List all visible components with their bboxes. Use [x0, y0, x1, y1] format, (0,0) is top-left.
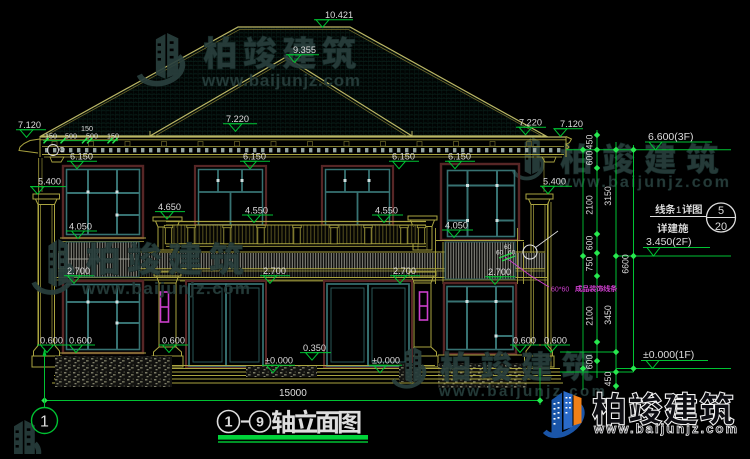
svg-text:±0.000: ±0.000 [265, 356, 293, 366]
svg-text:60: 60 [496, 250, 504, 257]
svg-text:3150: 3150 [603, 186, 613, 206]
svg-text:9: 9 [256, 414, 264, 430]
svg-text:9.355: 9.355 [293, 45, 316, 55]
svg-text:0.350: 0.350 [303, 343, 326, 353]
svg-text:5.400: 5.400 [38, 177, 61, 187]
svg-text:0.600: 0.600 [162, 336, 185, 346]
svg-text:3450: 3450 [603, 305, 613, 325]
svg-text:1: 1 [224, 415, 232, 431]
svg-text:6600: 6600 [621, 254, 631, 274]
svg-text:7.220: 7.220 [519, 118, 542, 128]
svg-text:±0.000: ±0.000 [372, 356, 400, 366]
svg-text:2.700: 2.700 [488, 267, 511, 277]
svg-text:450: 450 [585, 135, 595, 150]
svg-text:500: 500 [65, 132, 77, 141]
svg-text:6.150: 6.150 [448, 152, 471, 162]
svg-text:4.050: 4.050 [445, 221, 468, 231]
svg-text:60*60: 60*60 [551, 287, 569, 294]
svg-text:3.450(2F): 3.450(2F) [646, 236, 692, 248]
svg-text:5: 5 [718, 205, 724, 217]
svg-text:600: 600 [585, 355, 595, 370]
svg-text:0.600: 0.600 [544, 336, 567, 346]
svg-text:±0.000(1F): ±0.000(1F) [643, 349, 694, 361]
svg-text:6.600(3F): 6.600(3F) [648, 131, 694, 143]
svg-text:2100: 2100 [585, 306, 595, 326]
svg-text:2.700: 2.700 [263, 266, 286, 276]
svg-text:2.700: 2.700 [67, 266, 90, 276]
svg-text:www.baijunjz.com: www.baijunjz.com [201, 71, 360, 90]
svg-text:4.050: 4.050 [69, 222, 92, 232]
svg-text:0.600: 0.600 [513, 336, 536, 346]
svg-text:6.150: 6.150 [392, 152, 415, 162]
svg-text:20: 20 [715, 221, 727, 233]
svg-text:450: 450 [603, 372, 613, 387]
svg-text:7.220: 7.220 [226, 114, 249, 124]
svg-text:2100: 2100 [585, 195, 595, 215]
svg-text:4.550: 4.550 [245, 206, 268, 216]
svg-text:1: 1 [676, 205, 681, 216]
svg-text:600: 600 [585, 236, 595, 251]
svg-text:4.650: 4.650 [158, 202, 181, 212]
svg-text:4.550: 4.550 [375, 206, 398, 216]
svg-text:6.150: 6.150 [70, 152, 93, 162]
svg-text:750: 750 [585, 257, 595, 272]
svg-text:10.421: 10.421 [325, 10, 353, 20]
svg-text:600: 600 [585, 151, 595, 166]
svg-text:5.400: 5.400 [543, 177, 566, 187]
svg-text:0.600: 0.600 [69, 336, 92, 346]
svg-text:6.150: 6.150 [243, 152, 266, 162]
svg-text:7.120: 7.120 [560, 119, 583, 129]
svg-text:2.700: 2.700 [393, 266, 416, 276]
svg-text:7.120: 7.120 [18, 120, 41, 130]
svg-text:15000: 15000 [279, 388, 307, 399]
svg-text:www.baijunjz.com: www.baijunjz.com [81, 279, 250, 298]
svg-text:500: 500 [86, 132, 98, 141]
svg-text:0.600: 0.600 [40, 336, 63, 346]
svg-text:1: 1 [40, 414, 49, 431]
